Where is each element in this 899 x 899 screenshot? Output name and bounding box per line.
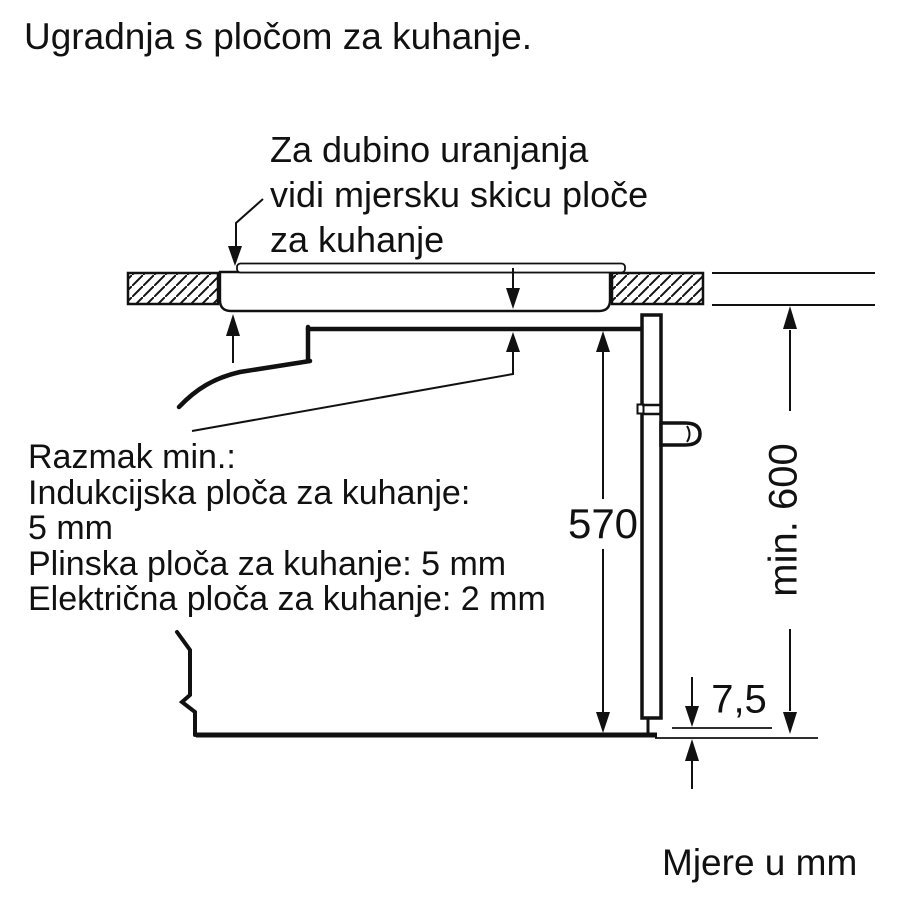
- dimension-label-7-5: 7,5: [711, 678, 767, 723]
- dim-570-arrow-top: [596, 331, 610, 352]
- hob-top-plate: [237, 264, 625, 273]
- clearance-leader-line: [192, 352, 513, 431]
- dimension-label-570: 570: [568, 500, 638, 548]
- units-note: Mjere u mm: [662, 842, 857, 884]
- dim-600-arrow-top: [783, 306, 797, 329]
- hob-tub: [220, 272, 610, 311]
- dim-75-up-arrow: [685, 739, 699, 761]
- page: { "page": { "title": "Ugradnja s pločom …: [0, 0, 899, 899]
- annotation-leader: [228, 199, 263, 266]
- hob-cross-section: [220, 264, 625, 312]
- clearance-up-arrow-head: [226, 314, 240, 336]
- clearance-line: Razmak min.:: [28, 440, 546, 476]
- worktop-right-hatch: [612, 273, 703, 304]
- clearance-line: Indukcijska ploča za kuhanje:: [28, 476, 546, 512]
- oven-left-break-line: [177, 632, 195, 735]
- clearance-line: Električna ploča za kuhanje: 2 mm: [28, 582, 546, 618]
- annotation-line: Za dubino uranjanja: [270, 127, 648, 172]
- annotation-leader-line: [236, 199, 263, 246]
- page-title: Ugradnja s pločom za kuhanje.: [24, 16, 532, 58]
- dim-570-arrow-bottom: [596, 712, 610, 733]
- clearance-line: Plinska ploča za kuhanje: 5 mm: [28, 547, 546, 583]
- clearance-note: Razmak min.: Indukcijska ploča za kuhanj…: [28, 440, 546, 618]
- annotation-line: za kuhanje: [270, 217, 648, 262]
- clearance-leader-arrow: [506, 332, 520, 352]
- dim-75-down-arrow: [685, 706, 699, 727]
- cabinet-front-break-curve: [179, 361, 310, 407]
- worktop-left-hatch: [128, 273, 218, 304]
- dim-600-arrow-bottom: [783, 712, 797, 734]
- clearance-line: 5 mm: [28, 511, 546, 547]
- annotation-line: vidi mjersku skicu ploče: [270, 172, 648, 217]
- oven-door-panel: [642, 315, 661, 718]
- dimension-label-min-600: min. 600: [762, 443, 807, 596]
- hob-depth-annotation: Za dubino uranjanja vidi mjersku skicu p…: [270, 127, 648, 262]
- oven-door: [638, 315, 701, 734]
- oven-door-handle: [661, 423, 700, 445]
